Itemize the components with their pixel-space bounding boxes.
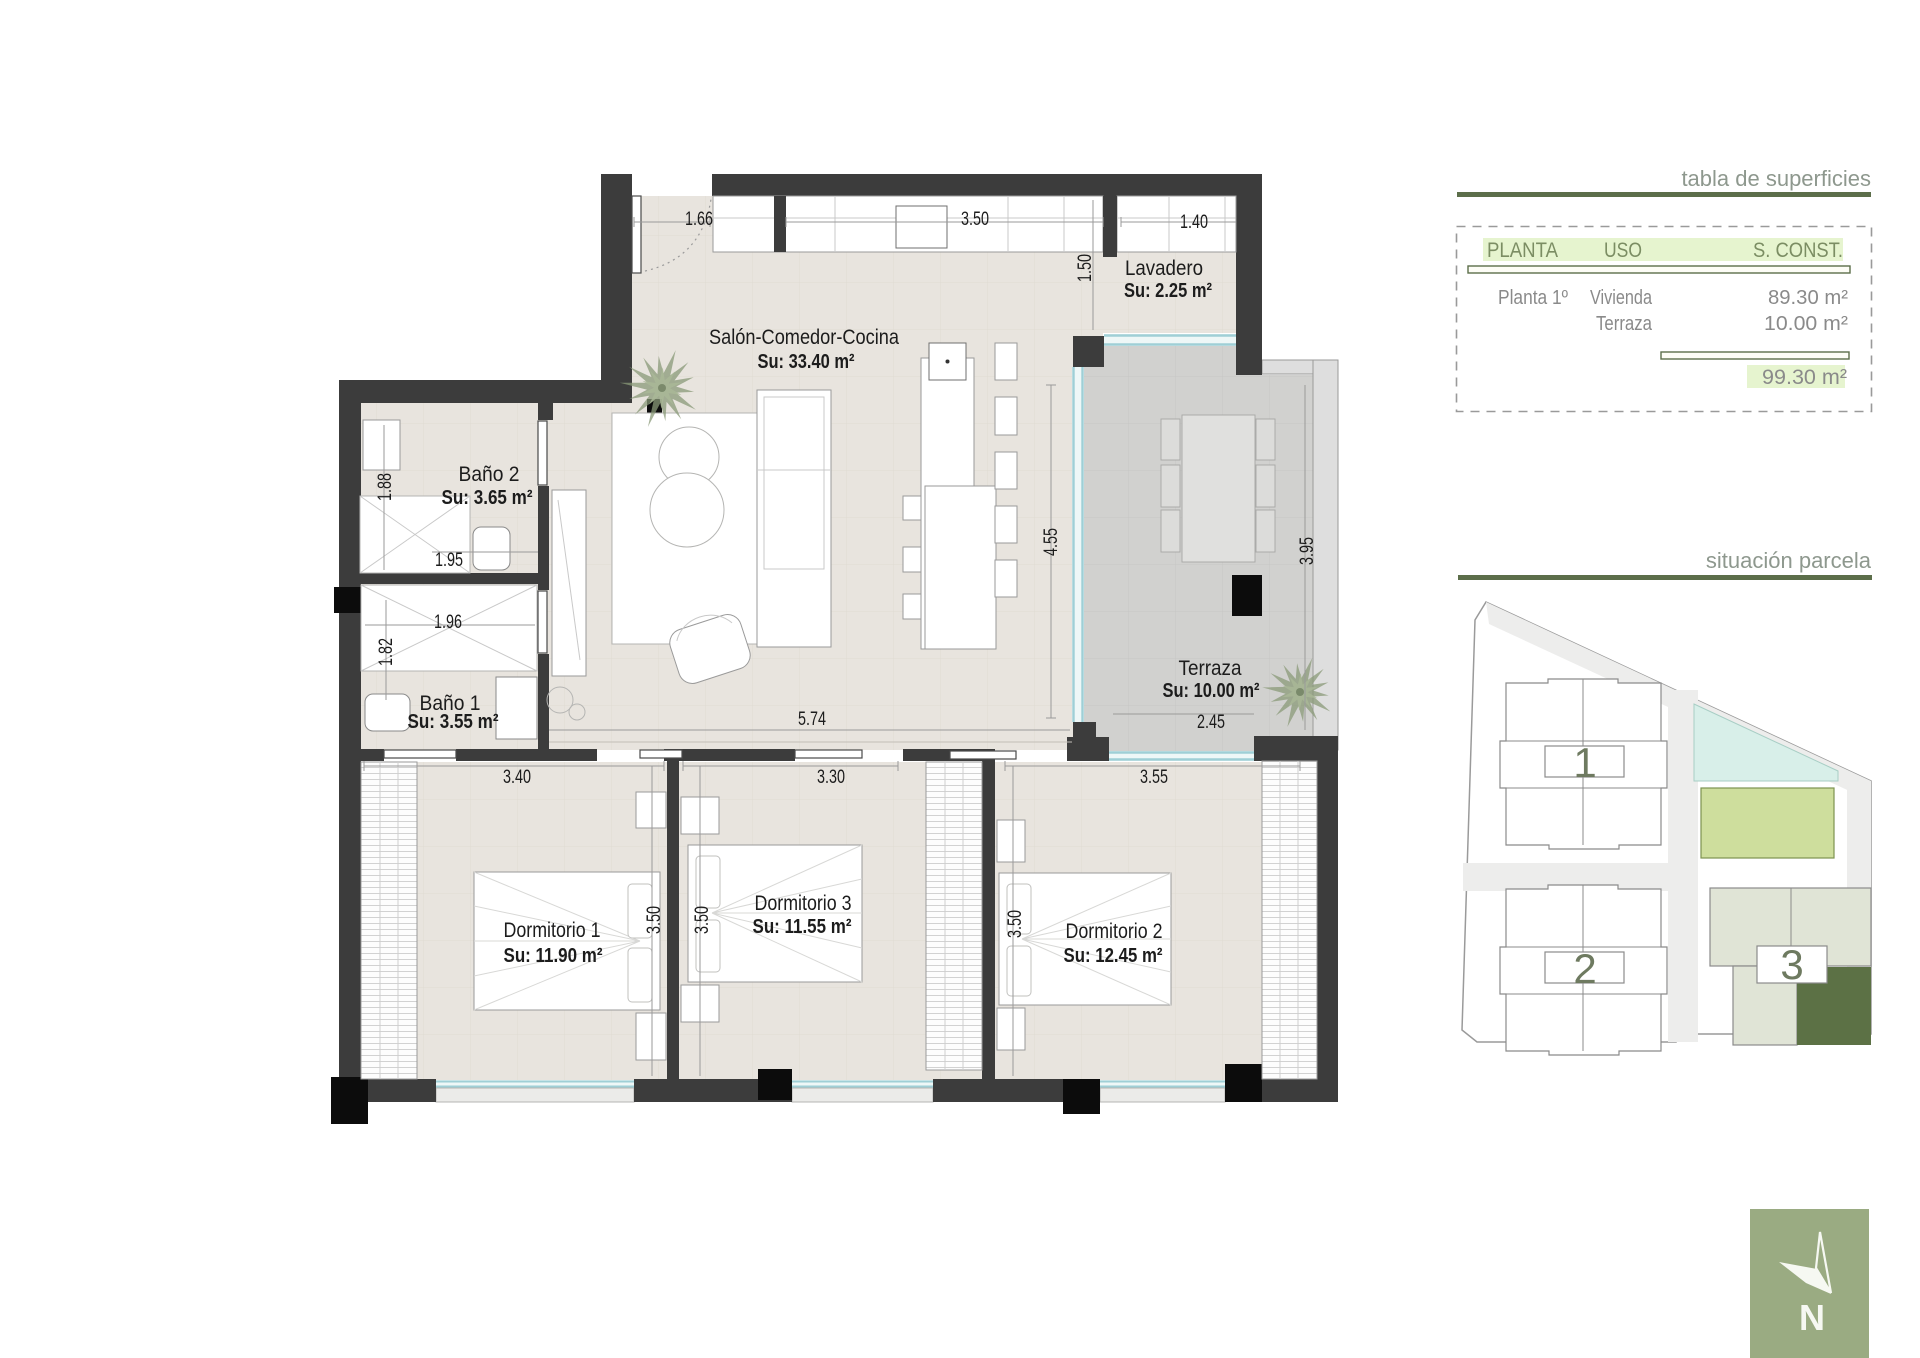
svg-text:3: 3 bbox=[1780, 941, 1803, 988]
svg-text:99.30 m²: 99.30 m² bbox=[1762, 366, 1847, 389]
svg-text:Lavadero: Lavadero bbox=[1125, 257, 1203, 280]
svg-text:Su: 33.40 m²: Su: 33.40 m² bbox=[758, 351, 855, 373]
svg-text:1.88: 1.88 bbox=[375, 473, 396, 501]
svg-text:3.50: 3.50 bbox=[1005, 910, 1026, 938]
svg-text:Dormitorio 1: Dormitorio 1 bbox=[504, 919, 601, 942]
svg-text:Terraza: Terraza bbox=[1596, 313, 1653, 335]
svg-text:1: 1 bbox=[1573, 739, 1596, 786]
svg-text:1.96: 1.96 bbox=[434, 612, 462, 633]
svg-text:3.50: 3.50 bbox=[961, 209, 989, 230]
svg-text:1.82: 1.82 bbox=[376, 638, 397, 666]
svg-text:2: 2 bbox=[1573, 945, 1596, 992]
svg-text:4.55: 4.55 bbox=[1041, 528, 1062, 556]
svg-text:Salón-Comedor-Cocina: Salón-Comedor-Cocina bbox=[709, 326, 899, 349]
svg-text:Su: 11.90 m²: Su: 11.90 m² bbox=[504, 945, 603, 967]
svg-text:Su: 3.65 m²: Su: 3.65 m² bbox=[442, 487, 533, 509]
svg-text:Su: 10.00 m²: Su: 10.00 m² bbox=[1163, 680, 1260, 702]
svg-text:Planta 1º: Planta 1º bbox=[1498, 287, 1569, 309]
svg-text:1.95: 1.95 bbox=[435, 550, 463, 571]
svg-text:USO: USO bbox=[1604, 239, 1642, 262]
svg-text:2.45: 2.45 bbox=[1197, 712, 1225, 733]
svg-text:Terraza: Terraza bbox=[1179, 657, 1242, 680]
svg-text:N: N bbox=[1799, 1297, 1825, 1338]
svg-text:3.30: 3.30 bbox=[817, 767, 845, 788]
svg-text:Su: 3.55 m²: Su: 3.55 m² bbox=[408, 711, 499, 733]
svg-text:S. CONST.: S. CONST. bbox=[1753, 239, 1843, 262]
svg-text:1.50: 1.50 bbox=[1075, 254, 1096, 282]
svg-text:3.40: 3.40 bbox=[503, 767, 531, 788]
svg-text:Su: 11.55 m²: Su: 11.55 m² bbox=[753, 916, 852, 938]
svg-text:3.50: 3.50 bbox=[644, 906, 665, 934]
svg-text:Vivienda: Vivienda bbox=[1590, 287, 1653, 309]
svg-text:PLANTA: PLANTA bbox=[1487, 239, 1558, 262]
svg-text:Su: 12.45 m²: Su: 12.45 m² bbox=[1064, 945, 1163, 967]
svg-text:10.00 m²: 10.00 m² bbox=[1764, 313, 1848, 335]
svg-text:Su: 2.25 m²: Su: 2.25 m² bbox=[1124, 280, 1212, 302]
svg-text:Dormitorio 2: Dormitorio 2 bbox=[1066, 920, 1163, 943]
svg-text:3.55: 3.55 bbox=[1140, 767, 1168, 788]
svg-text:1.66: 1.66 bbox=[685, 209, 713, 230]
svg-text:situación parcela: situación parcela bbox=[1706, 548, 1872, 573]
svg-text:3.95: 3.95 bbox=[1297, 537, 1318, 565]
svg-text:5.74: 5.74 bbox=[798, 709, 826, 730]
svg-text:Baño 2: Baño 2 bbox=[459, 463, 520, 486]
svg-text:1.40: 1.40 bbox=[1180, 212, 1208, 233]
svg-text:89.30 m²: 89.30 m² bbox=[1768, 287, 1848, 309]
svg-text:tabla de superficies: tabla de superficies bbox=[1681, 166, 1871, 191]
svg-text:3.50: 3.50 bbox=[692, 906, 713, 934]
svg-text:Dormitorio 3: Dormitorio 3 bbox=[755, 892, 852, 915]
